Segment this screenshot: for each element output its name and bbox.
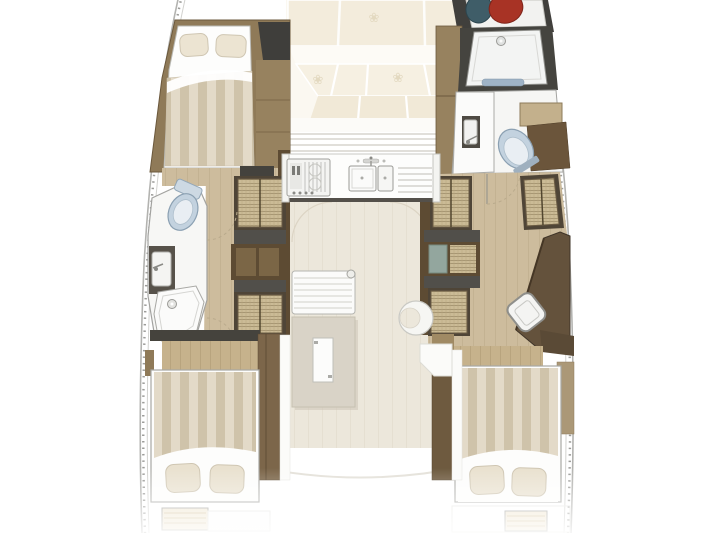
catamaran-floor-plan: ❀ ❀ ❀ (0, 0, 710, 533)
galley (282, 154, 440, 202)
lower-wicker-steps (431, 291, 467, 333)
cabinet-panel (236, 248, 256, 276)
faucet-base (154, 267, 158, 271)
teal-cabinet-panel (429, 245, 447, 273)
landing (424, 230, 480, 242)
pillow (179, 33, 208, 57)
crescent-seat (399, 301, 433, 335)
wardrobe-board (258, 334, 280, 480)
port-forward-cabin (150, 20, 290, 172)
flower-motif-icon: ❀ (393, 71, 404, 86)
cabin-bulkhead (150, 330, 260, 341)
cabinet-panel (259, 248, 279, 276)
starboard-hull (420, 0, 574, 533)
flower-motif-icon: ❀ (313, 73, 324, 88)
landing (424, 276, 480, 288)
leaf-hinge (328, 375, 332, 378)
pillow (215, 34, 246, 58)
striped-duvet (154, 372, 256, 460)
landing (234, 280, 286, 292)
counter-front-edge (282, 198, 440, 202)
wood-shelf (520, 103, 562, 126)
landing (234, 230, 286, 244)
seat-cushions (310, 96, 448, 120)
side-deck-strip (452, 350, 462, 480)
starboard-companionway (420, 168, 570, 350)
counter-leg (433, 154, 440, 202)
shower-tray (466, 30, 547, 86)
faucet-base (466, 140, 470, 144)
starboard-forward-head (436, 26, 570, 177)
port-hull (140, 0, 290, 533)
folding-table (292, 317, 358, 410)
flower-motif-icon: ❀ (369, 11, 380, 26)
wicker-cabinet-panel (450, 245, 476, 273)
stern-fade (0, 468, 710, 533)
cooktop (287, 159, 330, 196)
drain-center (171, 303, 174, 306)
sink-basin (464, 120, 477, 144)
side-deck-strip (280, 335, 290, 480)
faucet-icon (370, 157, 373, 160)
blue-bath-mat (482, 79, 524, 86)
striped-duvet (458, 368, 558, 460)
dark-locker (258, 22, 290, 60)
drain-center (500, 40, 503, 43)
leaf-hinge (314, 341, 318, 344)
floor-plan-canvas: ❀ ❀ ❀ (0, 0, 710, 533)
sofa (292, 270, 355, 314)
sofa-knob (347, 270, 355, 278)
